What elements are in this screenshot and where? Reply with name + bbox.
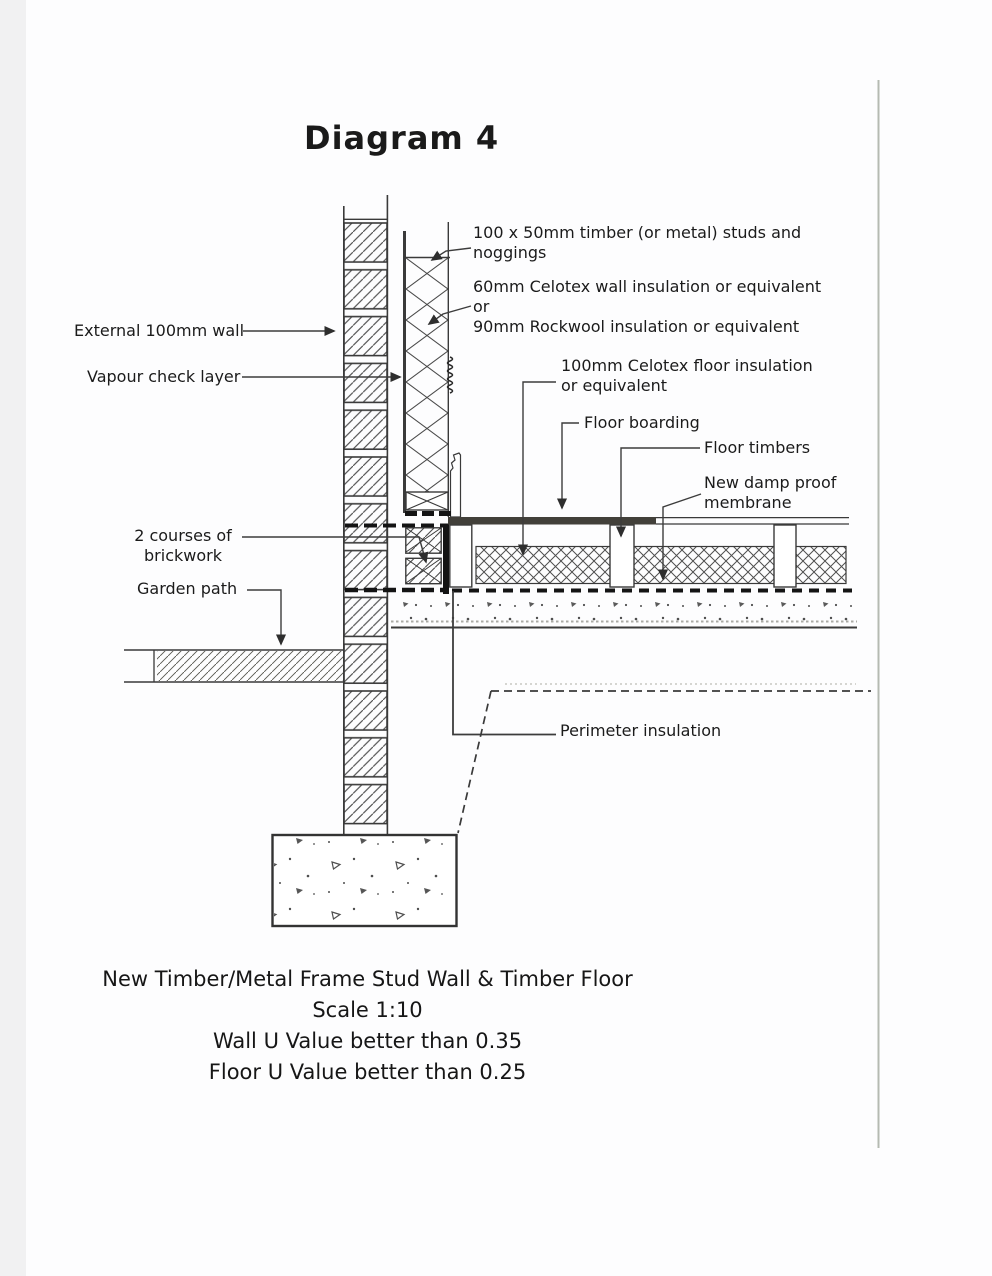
- external-wall-drawing: [343, 195, 388, 835]
- caption-block: New Timber/Metal Frame Stud Wall & Timbe…: [40, 964, 695, 1088]
- floor-timbers-label: Floor timbers: [704, 438, 810, 458]
- floor-timber: [774, 525, 796, 587]
- concrete-slab-drawing: [391, 595, 857, 628]
- perimeter-insulation-lines: [458, 684, 871, 833]
- stud-wall-drawing: [403, 222, 461, 517]
- garden-path-label: Garden path: [137, 579, 237, 599]
- skirting-board: [451, 453, 461, 517]
- garden-path-drawing: [124, 650, 343, 682]
- leader-brick-courses: [242, 537, 426, 562]
- scanned-page: Diagram 4: [0, 0, 992, 1276]
- floor-timber: [610, 525, 634, 587]
- studs-label: 100 x 50mm timber (or metal) studs and n…: [473, 223, 813, 263]
- caption-title: New Timber/Metal Frame Stud Wall & Timbe…: [40, 964, 695, 995]
- damp-proof-membrane-label: New damp proof membrane: [704, 473, 864, 513]
- foundation-drawing: [273, 835, 457, 926]
- floor-insulation-label: 100mm Celotex floor insulation or equiva…: [561, 356, 841, 396]
- brick-courses-label: 2 courses of brickwork: [127, 526, 239, 566]
- caption-wall-u-value: Wall U Value better than 0.35: [40, 1026, 695, 1057]
- external-wall-label: External 100mm wall: [74, 321, 244, 341]
- leader-garden-path: [247, 590, 281, 644]
- wall-insulation-label: 60mm Celotex wall insulation or equivale…: [473, 277, 833, 337]
- leader-floor-boarding: [562, 423, 579, 508]
- two-courses-brickwork: [405, 527, 442, 588]
- perimeter-insulation-label: Perimeter insulation: [560, 721, 721, 741]
- floor-boarding-label: Floor boarding: [584, 413, 700, 433]
- floor-assembly-drawing: [405, 517, 852, 591]
- leader-floor-insulation: [523, 382, 556, 554]
- floor-boarding-strip: [448, 517, 656, 525]
- floor-timber: [450, 525, 472, 587]
- vapour-check-label: Vapour check layer: [87, 367, 240, 387]
- caption-floor-u-value: Floor U Value better than 0.25: [40, 1057, 695, 1088]
- caption-scale: Scale 1:10: [40, 995, 695, 1026]
